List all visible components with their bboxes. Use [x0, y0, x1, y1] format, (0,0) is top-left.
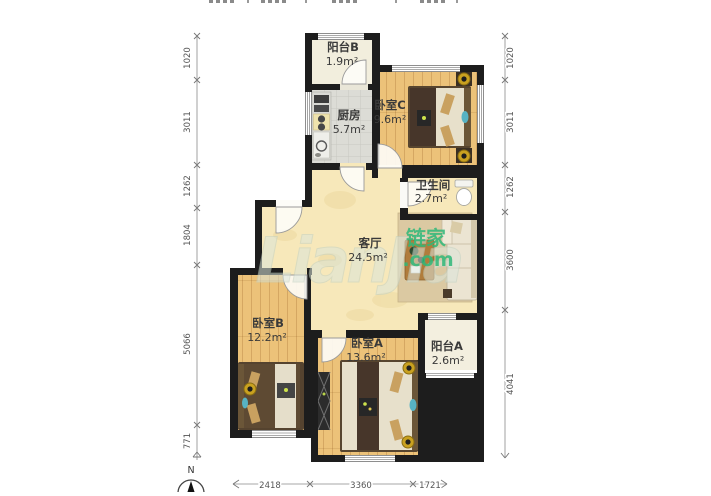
tv-power-dot	[363, 402, 367, 406]
dimension-left: 1020 3011 1262 1804 5066 771	[183, 33, 201, 460]
dim-label: 2418	[259, 481, 281, 491]
bed-bedroom-b	[238, 362, 304, 430]
dim-label: 1020	[183, 47, 193, 69]
dim-label: 1262	[506, 176, 516, 198]
dim-label: 5066	[183, 333, 193, 355]
wall-segment	[311, 330, 318, 462]
window	[318, 34, 364, 40]
window	[392, 66, 460, 72]
window	[345, 456, 395, 462]
sink-icon	[314, 95, 329, 103]
window	[306, 92, 312, 135]
watermark-tld: .com	[402, 249, 453, 271]
stove-burner-icon	[318, 123, 325, 130]
tv-power-dot	[284, 388, 288, 392]
compass: N	[178, 465, 204, 492]
dimension-bottom: 2418 3360 1721	[233, 480, 447, 491]
dim-label: 3011	[506, 111, 516, 133]
door-opening	[276, 200, 302, 207]
dim-label: 1721	[419, 481, 441, 491]
room-name: 卧室A	[351, 336, 383, 350]
room-area: 5.7m²	[333, 123, 366, 136]
room-name: 卧室B	[252, 316, 284, 330]
room-name: 卫生间	[416, 178, 451, 192]
wardrobe	[318, 372, 330, 430]
dim-label: 4041	[506, 373, 516, 395]
room-name: 阳台A	[431, 339, 463, 353]
dim-label: 1804	[183, 224, 193, 246]
dim-label: 771	[183, 433, 193, 449]
room-area: 2.6m²	[432, 354, 465, 367]
door-opening	[400, 182, 408, 208]
kitchen-counter	[312, 92, 331, 160]
wall-segment	[418, 373, 484, 462]
dim-label: 3011	[183, 111, 193, 133]
dim-label: 3360	[350, 481, 372, 491]
dim-label: 1020	[506, 47, 516, 69]
room-area: 9.6m²	[374, 113, 407, 126]
window	[252, 431, 296, 438]
window	[478, 85, 484, 143]
dimension-top-clipped	[209, 0, 458, 3]
window	[426, 371, 474, 378]
floorplan-canvas: LianJia 链家 .com 阳台B 1.9m² 厨房 5.7m² 卧室C 9…	[0, 0, 711, 492]
room-name: 卧室C	[374, 98, 405, 112]
dim-label: 1262	[183, 175, 193, 197]
wall-segment	[418, 313, 425, 380]
room-area: 24.5m²	[348, 251, 388, 264]
watermark-cn: 链家	[406, 226, 447, 250]
room-area: 2.7m²	[415, 192, 448, 205]
stove-burner-icon	[318, 115, 325, 122]
dim-label: 3600	[506, 249, 516, 271]
room-area: 1.9m²	[326, 55, 359, 68]
door-opening	[322, 330, 346, 338]
toilet-icon	[455, 180, 473, 206]
wall-segment	[400, 214, 484, 220]
sliding-door	[428, 314, 456, 320]
room-name: 阳台B	[327, 40, 359, 54]
room-name: 客厅	[358, 236, 382, 250]
dimension-right: 1020 3011 1262 3600 4041	[501, 33, 516, 458]
compass-north-label: N	[187, 465, 194, 476]
room-label-bathroom: 卫生间 2.7m²	[415, 178, 451, 205]
room-name: 厨房	[338, 108, 361, 122]
tv-power-dot	[422, 116, 426, 120]
room-area: 13.6m²	[346, 351, 386, 364]
wall-segment	[230, 268, 238, 438]
room-area: 12.2m²	[247, 331, 287, 344]
bed-bedroom-a	[340, 360, 418, 452]
door-opening	[340, 84, 368, 90]
